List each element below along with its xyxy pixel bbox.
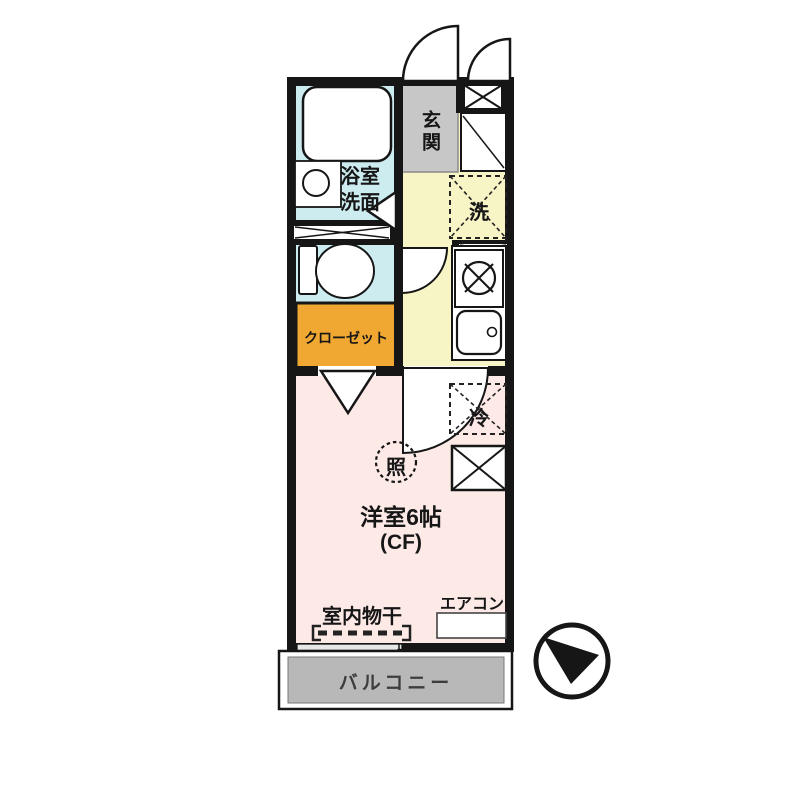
closet-label: クローゼット xyxy=(297,328,395,348)
toilet-icon xyxy=(299,244,374,298)
entrance-door-arc xyxy=(403,26,458,81)
entrance-label: 玄関 xyxy=(416,94,443,170)
main-room-label: 洋室6帖 xyxy=(323,498,479,532)
aircon-label: エアコン xyxy=(432,590,512,614)
meter-box-icon xyxy=(464,85,502,109)
balcony-label: バルコニー xyxy=(296,668,496,695)
aircon-unit-icon xyxy=(437,613,506,638)
ceiling-light-label: 照 xyxy=(376,451,416,480)
floor-plan: 浴室 洗面 玄関 洗 クローゼット 照 洋室6帖 (CF) 冷 室内物干 エアコ… xyxy=(0,0,800,800)
bathroom-label: 浴室 洗面 xyxy=(322,164,398,216)
bathroom-label-line1: 浴室 xyxy=(322,164,398,190)
bathroom-label-line2: 洗面 xyxy=(322,190,398,216)
washing-machine-label: 洗 xyxy=(460,196,498,225)
bathtub-icon xyxy=(303,87,391,161)
refrigerator-label: 冷 xyxy=(460,402,498,431)
indoor-drying-label: 室内物干 xyxy=(303,600,421,629)
window-bathroom-icon xyxy=(287,220,398,245)
shoe-cabinet-icon xyxy=(461,113,506,171)
flooring-label: (CF) xyxy=(348,531,454,555)
storage-door-arc xyxy=(468,39,510,81)
north-arrow-icon xyxy=(536,625,608,697)
storage-box-icon xyxy=(452,446,506,490)
kitchen-counter-icon xyxy=(452,246,506,360)
